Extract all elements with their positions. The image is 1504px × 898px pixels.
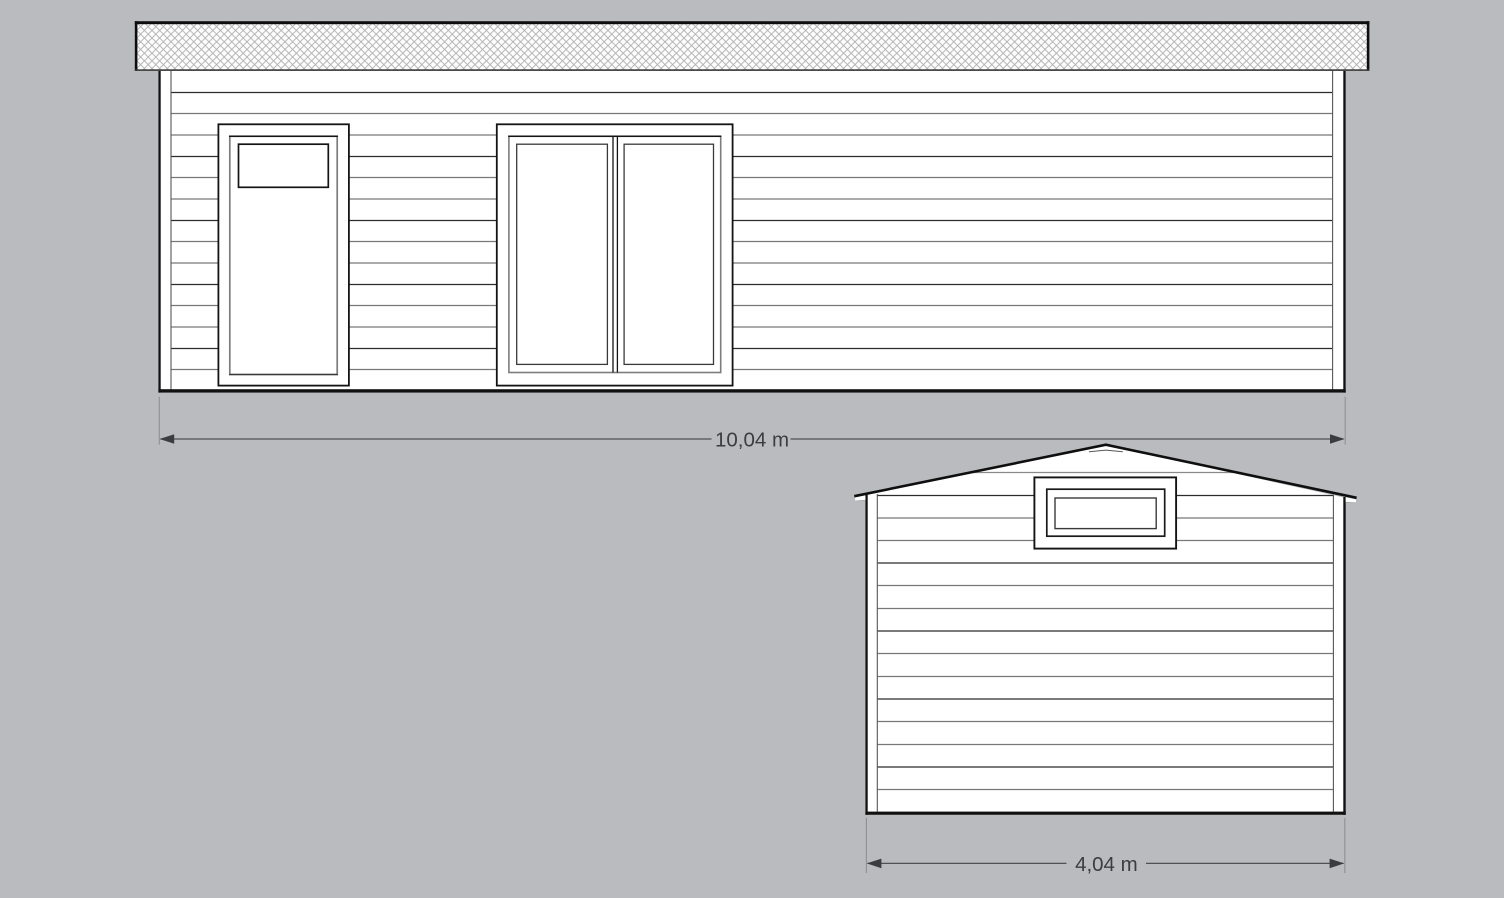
svg-text:4,04 m: 4,04 m bbox=[1075, 853, 1138, 876]
svg-text:10,04 m: 10,04 m bbox=[715, 429, 789, 452]
